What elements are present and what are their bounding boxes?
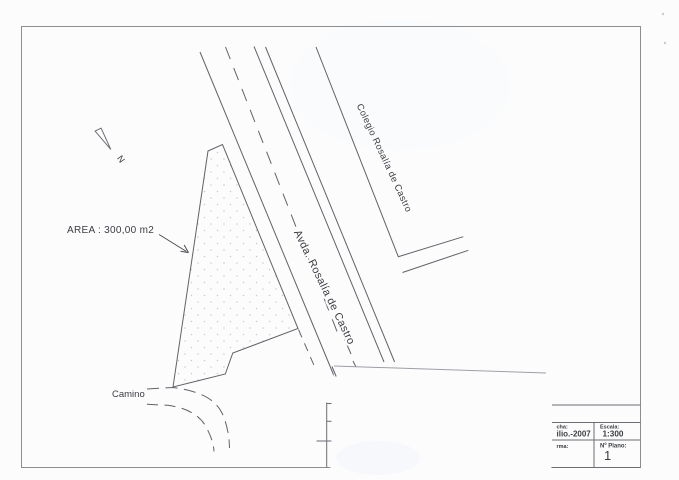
svg-text:Camino: Camino bbox=[112, 389, 145, 400]
svg-text:AREA : 300,00 m2: AREA : 300,00 m2 bbox=[67, 225, 154, 236]
svg-text:ilio.-2007: ilio.-2007 bbox=[557, 430, 592, 439]
svg-text:rma:: rma: bbox=[557, 444, 569, 450]
svg-text:1:300: 1:300 bbox=[603, 430, 624, 439]
svg-text:1: 1 bbox=[604, 448, 611, 463]
